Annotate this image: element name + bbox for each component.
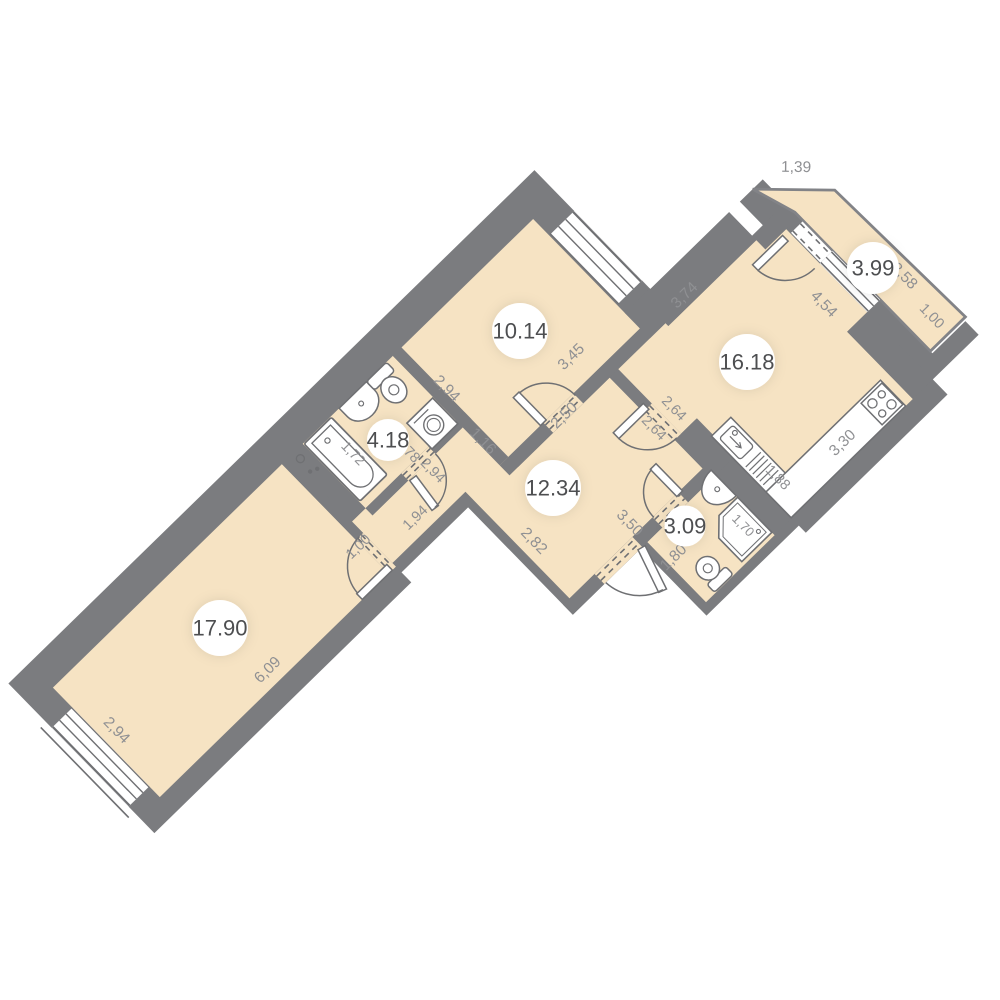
svg-text:10.14: 10.14 — [492, 319, 547, 344]
svg-text:16.18: 16.18 — [719, 350, 774, 375]
svg-text:1,39: 1,39 — [781, 159, 811, 176]
svg-text:3.99: 3.99 — [852, 256, 895, 281]
svg-text:4.18: 4.18 — [367, 428, 410, 453]
svg-text:17.90: 17.90 — [192, 616, 247, 641]
svg-text:3.09: 3.09 — [664, 514, 707, 539]
svg-text:12.34: 12.34 — [525, 476, 580, 501]
